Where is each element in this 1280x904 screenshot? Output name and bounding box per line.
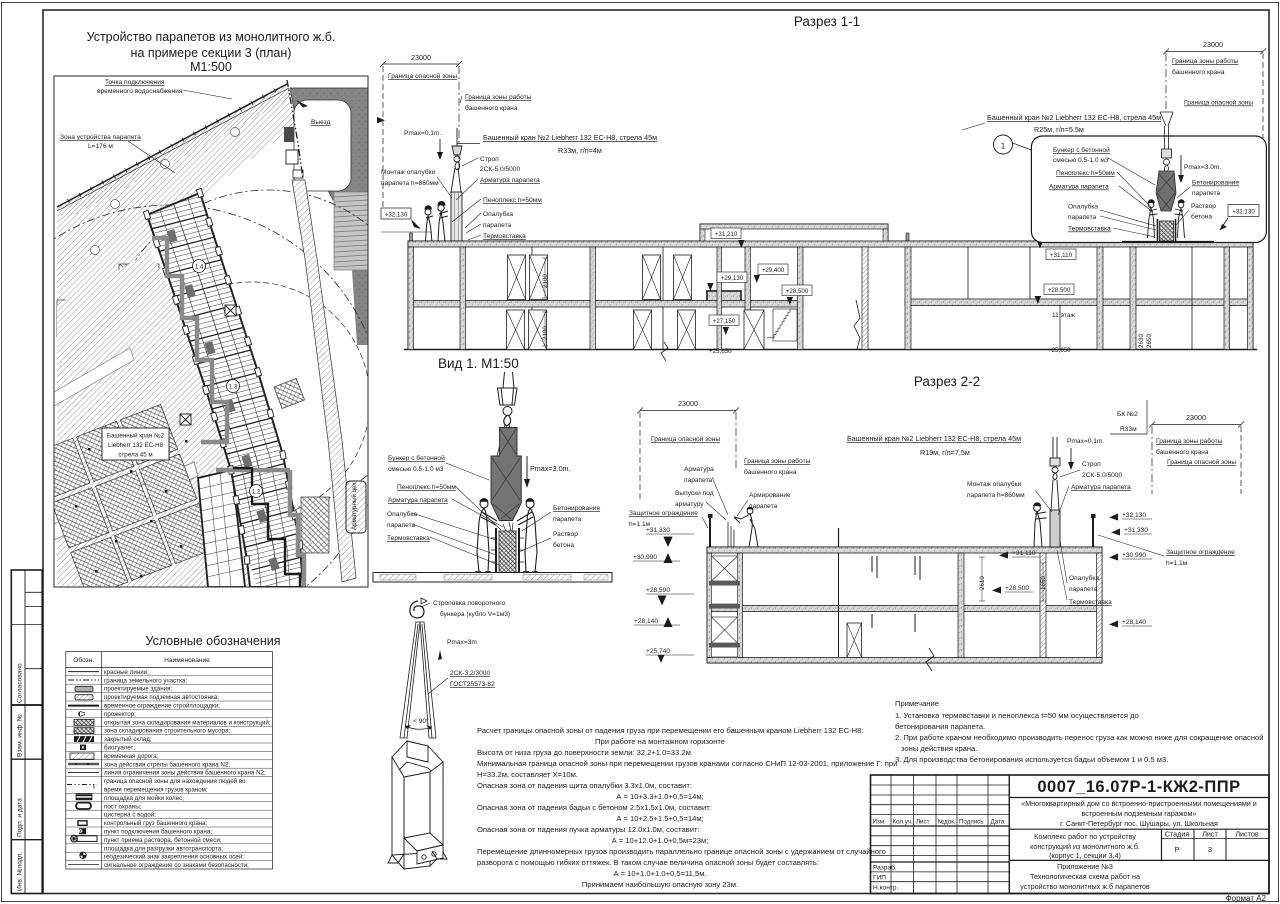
svg-text:Выезд: Выезд <box>311 119 331 126</box>
svg-text:1. Установка термовставки и пе: 1. Установка термовставки и пеноплекса t… <box>895 711 1139 720</box>
svg-text:Арматура парапета: Арматура парапета <box>1049 184 1109 191</box>
svg-text:Арматурный цех: Арматурный цех <box>351 482 358 530</box>
svg-text:2СК-3,2/3000: 2СК-3,2/3000 <box>450 670 490 677</box>
svg-text:Опасная зона от падения щита о: Опасная зона от падения щита опалубки 3.… <box>477 781 692 790</box>
svg-text:R33м, г/п=4м: R33м, г/п=4м <box>558 146 602 155</box>
svg-text:При работе на монтажном горизо: При работе на монтажном горизонте <box>595 737 725 746</box>
svg-text:конструкций из монолитного ж.б: конструкций из монолитного ж.б. <box>1030 842 1140 851</box>
svg-text:Вид 1. М1:50: Вид 1. М1:50 <box>438 356 519 371</box>
svg-text:бункера (кубло V=1м3): бункера (кубло V=1м3) <box>440 610 510 618</box>
svg-text:+31,330: +31,330 <box>646 527 670 534</box>
svg-text:1: 1 <box>1001 142 1006 151</box>
svg-text:парапета: парапета <box>1069 586 1098 593</box>
svg-text:смесью 0.5-1.0 м3: смесью 0.5-1.0 м3 <box>388 466 444 473</box>
svg-text:пункт подключения башенного кр: пункт подключения башенного крана; <box>104 829 212 836</box>
svg-text:+29,130: +29,130 <box>721 275 744 282</box>
svg-text:башенного крана: башенного крана <box>1172 68 1225 76</box>
svg-text:парапета: парапета <box>684 477 713 484</box>
svg-text:Наименование: Наименование <box>164 657 210 664</box>
svg-text:R33м: R33м <box>1120 426 1137 433</box>
svg-text:зона действия стрелы башенного: зона действия стрелы башенного крана N2; <box>104 761 230 768</box>
svg-text:h=1.1м: h=1.1м <box>1166 560 1188 567</box>
svg-text:А = 10+2.5+1.5+0,5=14м;: А = 10+2.5+1.5+0,5=14м; <box>616 814 703 823</box>
svg-text:+30,990: +30,990 <box>633 554 657 561</box>
svg-text:Расчет границы опасной зоны от: Расчет границы опасной зоны от падения г… <box>477 726 863 735</box>
svg-text:парапета: парапета <box>387 522 416 529</box>
svg-text:3: 3 <box>1208 845 1212 854</box>
svg-text:Башенный кран №2: Башенный кран №2 <box>107 433 165 440</box>
svg-text:Защитное ограждение: Защитное ограждение <box>629 510 698 517</box>
svg-text:+28,500: +28,500 <box>1048 287 1071 294</box>
svg-text:2. При работе краном необходим: 2. При работе краном необходимо производ… <box>895 733 1264 742</box>
svg-text:R25м, г/п=5.5м: R25м, г/п=5.5м <box>1034 125 1084 134</box>
svg-text:+32,130: +32,130 <box>385 212 408 219</box>
svg-text:+31,110: +31,110 <box>1012 550 1036 557</box>
svg-text:парапета: парапета <box>483 222 512 229</box>
svg-text:Согласовано: Согласовано <box>17 663 24 703</box>
svg-text:встроенным подземным гаражом»: встроенным подземным гаражом» <box>1081 809 1196 818</box>
svg-text:пункт приема раствора, бетонно: пункт приема раствора, бетонной смеси; <box>104 837 222 844</box>
svg-text:+28,140: +28,140 <box>1122 619 1146 626</box>
svg-text:М1:500: М1:500 <box>190 60 232 74</box>
svg-text:Дата: Дата <box>991 819 1005 826</box>
svg-text:Liebherr 132 ЕС-Н8: Liebherr 132 ЕС-Н8 <box>108 442 164 449</box>
svg-text:арматуру: арматуру <box>675 501 704 508</box>
svg-text:Армирование: Армирование <box>749 492 791 499</box>
svg-text:бетона: бетона <box>553 541 574 549</box>
svg-text:зона складирования строительно: зона складирования строительного мусора; <box>104 728 230 735</box>
svg-text:Монтаж опалубки: Монтаж опалубки <box>381 168 436 176</box>
svg-text:1650: 1650 <box>1040 576 1047 590</box>
svg-text:граница опасной зоны для нахож: граница опасной зоны для нахождения люде… <box>104 778 246 785</box>
svg-text:А = 10+3.3+1.0+0,5=14м;: А = 10+3.3+1.0+0,5=14м; <box>616 792 703 801</box>
svg-text:Разраб.: Разраб. <box>873 864 897 872</box>
svg-text:линия ограничения зоны действи: линия ограничения зоны действия башенног… <box>104 770 266 777</box>
svg-text:Башенный кран №2 Liebherr 132: Башенный кран №2 Liebherr 132 ЕС-Н8, стр… <box>987 113 1161 122</box>
svg-text:23000: 23000 <box>1186 413 1206 422</box>
svg-text:Формат А2: Формат А2 <box>1226 894 1267 903</box>
svg-text:зоны действия крана.: зоны действия крана. <box>901 744 977 753</box>
svg-text:Раствор: Раствор <box>1191 203 1216 210</box>
svg-text:Граница зоны работы: Граница зоны работы <box>1156 437 1223 445</box>
svg-text:Примечание: Примечание <box>895 699 939 708</box>
svg-text:23000: 23000 <box>1203 40 1223 49</box>
svg-text:< 90°: < 90° <box>413 717 429 725</box>
svg-text:Р: Р <box>1174 845 1179 854</box>
svg-text:3. Для производства бетонирова: 3. Для производства бетонирования исполь… <box>895 755 1168 764</box>
svg-text:площадка для мойки колес;: площадка для мойки колес; <box>104 795 184 802</box>
svg-text:Граница зоны работы: Граница зоны работы <box>1172 57 1239 65</box>
svg-text:Опалубка: Опалубка <box>483 210 513 218</box>
svg-text:Арматура: Арматура <box>684 466 714 473</box>
svg-text:Граница зоны работы: Граница зоны работы <box>744 457 811 465</box>
svg-text:Pmax=0,1m.: Pmax=0,1m. <box>1067 438 1104 445</box>
svg-text:на примере секции 3 (план): на примере секции 3 (план) <box>131 46 292 60</box>
svg-text:Разрез 1-1: Разрез 1-1 <box>794 14 860 29</box>
svg-text:«Многоквартирный дом со встрое: «Многоквартирный дом со встроенно-пристр… <box>1021 799 1257 808</box>
svg-text:Н=33.2м, составляет Х=10м.: Н=33.2м, составляет Х=10м. <box>477 770 578 779</box>
svg-text:Зона устройства парапета: Зона устройства парапета <box>60 133 141 141</box>
svg-text:Опалубка: Опалубка <box>1068 203 1098 211</box>
svg-text:2630: 2630 <box>1138 334 1145 348</box>
svg-text:БК №2: БК №2 <box>1117 411 1138 418</box>
svg-text:Строповка поворотного: Строповка поворотного <box>433 600 505 607</box>
svg-text:Бетонирование: Бетонирование <box>1192 180 1239 187</box>
svg-text:пост охраны;: пост охраны; <box>104 803 142 810</box>
svg-text:+32,130: +32,130 <box>1122 512 1146 519</box>
svg-text:бетона: бетона <box>1191 213 1212 221</box>
svg-text:Термовставка: Термовставка <box>1068 226 1111 233</box>
svg-text:Pmax=3.0m.: Pmax=3.0m. <box>1184 164 1221 171</box>
svg-text:+28,140: +28,140 <box>634 618 658 625</box>
svg-text:Подпись: Подпись <box>959 819 984 826</box>
svg-text:+28,500: +28,500 <box>786 288 809 295</box>
svg-text:стрела 45 м: стрела 45 м <box>118 452 152 459</box>
svg-text:цистерна с водой;: цистерна с водой; <box>104 812 156 819</box>
svg-text:открытая зона складирования ма: открытая зона складирования материалов и… <box>104 719 271 726</box>
svg-text:Устройство парапетов из моноли: Устройство парапетов из монолитного ж.б. <box>87 30 336 44</box>
svg-text:R19м, г/п=7,5м: R19м, г/п=7,5м <box>920 448 970 457</box>
svg-text:временного водоснабжения: временного водоснабжения <box>97 87 183 95</box>
svg-text:площадка для разгрузки автотра: площадка для разгрузки автотранспорта; <box>104 845 223 852</box>
svg-text:контрольный груз башенного кра: контрольный груз башенного крана; <box>104 820 208 827</box>
svg-text:Раствор: Раствор <box>553 531 578 538</box>
svg-text:Бункер с бетонной: Бункер с бетонной <box>1053 146 1110 154</box>
svg-text:Листов: Листов <box>1235 830 1259 839</box>
svg-text:2650: 2650 <box>1146 334 1153 348</box>
svg-text:сигнальное ограждение со знака: сигнальное ограждение со знаками безопас… <box>104 862 249 869</box>
svg-text:Граница опасной зоны: Граница опасной зоны <box>388 72 457 80</box>
svg-text:башенного крана: башенного крана <box>465 104 518 112</box>
svg-text:Н.контр.: Н.контр. <box>873 885 899 892</box>
svg-text:Pmax=3m: Pmax=3m <box>447 639 477 646</box>
svg-text:парапета: парапета <box>1068 214 1097 221</box>
svg-text:парапета h=860мм: парапета h=860мм <box>967 492 1025 499</box>
svg-text:красные линии;: красные линии; <box>104 669 149 676</box>
svg-text:бетонирования парапета.: бетонирования парапета. <box>895 722 985 731</box>
svg-text:+30,990: +30,990 <box>1122 552 1146 559</box>
svg-text:парапета: парапета <box>749 503 778 510</box>
svg-text:Pmax=3.0m.: Pmax=3.0m. <box>530 464 571 473</box>
svg-text:2100: 2100 <box>542 326 549 340</box>
svg-text:+31,330: +31,330 <box>1124 527 1148 534</box>
svg-text:(корпус 1, секции 3,4): (корпус 1, секции 3,4) <box>1049 851 1121 860</box>
svg-text:Термовставка: Термовставка <box>483 233 526 240</box>
svg-text:Минимальная граница опасной зо: Минимальная граница опасной зоны при пер… <box>477 759 897 768</box>
svg-text:Принимаем наибольшую опасную з: Принимаем наибольшую опасную зону 23м. <box>582 880 738 889</box>
svg-text:Технологическая схема работ на: Технологическая схема работ на <box>1030 872 1140 881</box>
svg-text:парапета: парапета <box>1192 190 1221 197</box>
svg-text:ГОСТ25573-82: ГОСТ25573-82 <box>450 681 495 688</box>
svg-text:Граница опасной зоны: Граница опасной зоны <box>1167 458 1236 466</box>
svg-text:Граница опасной зоны: Граница опасной зоны <box>1184 99 1253 107</box>
svg-text:Разрез 2-2: Разрез 2-2 <box>914 374 980 389</box>
svg-text:Термовставка: Термовставка <box>1069 599 1112 606</box>
svg-text:временная дорога;: временная дорога; <box>104 753 159 760</box>
svg-text:Приложение №3: Приложение №3 <box>1057 862 1113 871</box>
svg-text:Перемещение длинномерных грузо: Перемещение длинномерных грузов производ… <box>477 847 886 856</box>
svg-text:+28,590: +28,590 <box>646 587 670 594</box>
svg-text:№док.: №док. <box>938 819 956 826</box>
svg-text:прожектор;: прожектор; <box>104 711 136 718</box>
svg-text:Высота от низа груза до поверх: Высота от низа груза до поверхности земл… <box>477 748 693 757</box>
svg-text:+31,210: +31,210 <box>715 231 738 238</box>
svg-text:2СК-5,0/5000: 2СК-5,0/5000 <box>1082 472 1122 479</box>
svg-text:смесью 0.5-1.0 м3: смесью 0.5-1.0 м3 <box>1053 157 1109 164</box>
svg-text:+27,150: +27,150 <box>713 318 736 325</box>
svg-text:+29,400: +29,400 <box>762 267 785 274</box>
svg-text:1.4: 1.4 <box>195 264 204 271</box>
svg-text:граница земельного участка;: граница земельного участка; <box>104 677 187 684</box>
svg-text:проектируемая подземная автост: проектируемая подземная автостоянка; <box>104 694 219 701</box>
svg-text:1.3: 1.3 <box>229 384 238 391</box>
svg-text:время перемещения грузов крано: время перемещения грузов краном; <box>104 787 208 794</box>
svg-text:+31,110: +31,110 <box>1050 252 1073 259</box>
svg-text:Опалубка: Опалубка <box>1069 574 1099 582</box>
svg-text:Подп. и дата: Подп. и дата <box>17 798 24 837</box>
svg-text:Кол.уч.: Кол.уч. <box>893 819 914 826</box>
svg-text:башенного крана: башенного крана <box>744 468 797 476</box>
svg-text:Опасная зона от падения пучка: Опасная зона от падения пучка арматуры 1… <box>477 825 700 834</box>
svg-text:Термовставка: Термовставка <box>387 535 430 542</box>
svg-text:биотуалет;: биотуалет; <box>104 745 135 752</box>
svg-text:Граница зоны работы: Граница зоны работы <box>465 93 532 101</box>
svg-text:Пеноплекс h=50мм: Пеноплекс h=50мм <box>397 484 456 491</box>
svg-text:Пеноплекс h=50мм: Пеноплекс h=50мм <box>483 197 542 204</box>
svg-text:Бетонирование: Бетонирование <box>553 505 600 512</box>
svg-text:Арматура парапета: Арматура парапета <box>480 177 540 184</box>
svg-text:парапета h=860мм: парапета h=860мм <box>381 180 439 187</box>
svg-text:+25,650: +25,650 <box>1048 347 1071 354</box>
svg-text:Пеноплекс h=50мм: Пеноплекс h=50мм <box>1056 170 1115 177</box>
svg-text:Башенный кран №2 Liebherr 132: Башенный кран №2 Liebherr 132 ЕС-Н8, стр… <box>847 434 1021 443</box>
svg-text:проектируемые здания;: проектируемые здания; <box>104 686 172 693</box>
svg-text:Опасная зона от падения бадьи: Опасная зона от падения бадьи с бетоном … <box>477 803 712 812</box>
svg-text:Монтаж опалубки: Монтаж опалубки <box>967 480 1022 488</box>
svg-text:11 этаж: 11 этаж <box>1052 312 1076 319</box>
svg-text:Граница опасной зоны: Граница опасной зоны <box>651 435 720 443</box>
svg-text:парапета: парапета <box>553 516 582 523</box>
svg-text:Выпуски под: Выпуски под <box>675 490 714 497</box>
svg-text:2100: 2100 <box>542 274 549 288</box>
svg-text:Инв. №подл.: Инв. №подл. <box>17 852 24 891</box>
svg-text:2СК-5,0/5000: 2СК-5,0/5000 <box>480 166 520 173</box>
svg-text:геодезический знак закрепления: геодезический знак закрепления основных … <box>104 854 244 861</box>
svg-text:+25,740: +25,740 <box>646 648 670 655</box>
svg-text:ГИП: ГИП <box>873 875 886 882</box>
svg-text:Арматура парапета: Арматура парапета <box>1071 484 1131 491</box>
svg-text:Бункер с бетонной: Бункер с бетонной <box>388 454 445 462</box>
svg-text:А = 10+1.0+1.0+0,5=11,5м.: А = 10+1.0+1.0+0,5=11,5м. <box>613 869 706 878</box>
svg-text:Башенный кран №2 Liebherr 132: Башенный кран №2 Liebherr 132 ЕС-Н8, стр… <box>483 133 657 142</box>
svg-text:Опалубка: Опалубка <box>387 510 417 518</box>
svg-text:Изм.: Изм. <box>873 819 887 826</box>
svg-text:1.2: 1.2 <box>252 489 261 496</box>
svg-text:Стадия: Стадия <box>1165 830 1190 839</box>
svg-text:Обозн.: Обозн. <box>73 656 94 664</box>
svg-text:Комплекс работ по устройству: Комплекс работ по устройству <box>1034 832 1136 841</box>
svg-text:+32,130: +32,130 <box>1232 209 1255 216</box>
svg-text:0007_16.07Р-1-КЖ2-ППР: 0007_16.07Р-1-КЖ2-ППР <box>1037 778 1240 796</box>
svg-text:Арматура парапета: Арматура парапета <box>388 497 448 504</box>
svg-text:+25,650: +25,650 <box>709 348 732 355</box>
svg-text:А = 10+12.0+1.0+0,5м=23м;: А = 10+12.0+1.0+0,5м=23м; <box>612 836 709 845</box>
svg-text:Строп: Строп <box>480 156 499 163</box>
svg-text:23000: 23000 <box>678 399 698 408</box>
svg-text:г. Санкт-Петербург пос. Шушары: г. Санкт-Петербург пос. Шушары, ул. Школ… <box>1060 819 1218 828</box>
svg-text:Точка подключения: Точка подключения <box>105 79 165 86</box>
svg-text:устройство монолитных ж.б пара: устройство монолитных ж.б парапетов <box>1020 882 1150 891</box>
svg-text:временное ограждение стройплощ: временное ограждение стройплощадки; <box>104 703 220 710</box>
svg-text:Лист: Лист <box>916 819 930 826</box>
svg-text:Строп: Строп <box>1082 461 1101 468</box>
svg-text:Лист: Лист <box>1202 830 1218 839</box>
svg-text:Защитное ограждение: Защитное ограждение <box>1166 549 1235 556</box>
svg-text:башенного крана: башенного крана <box>1156 448 1209 456</box>
svg-text:L=176 м: L=176 м <box>88 143 113 150</box>
svg-text:2610: 2610 <box>979 576 986 590</box>
svg-text:23000: 23000 <box>411 53 431 62</box>
svg-text:закрытый склад;: закрытый склад; <box>104 736 152 743</box>
svg-text:+28,500: +28,500 <box>1005 585 1029 592</box>
svg-text:разворота с помощью гибких отт: разворота с помощью гибких оттяжек. В та… <box>477 858 819 867</box>
svg-text:Pmax=0,1m.: Pmax=0,1m. <box>404 130 441 137</box>
svg-text:Взам. инф. №: Взам. инф. № <box>17 714 24 757</box>
svg-text:Условные обозначения: Условные обозначения <box>145 634 280 648</box>
